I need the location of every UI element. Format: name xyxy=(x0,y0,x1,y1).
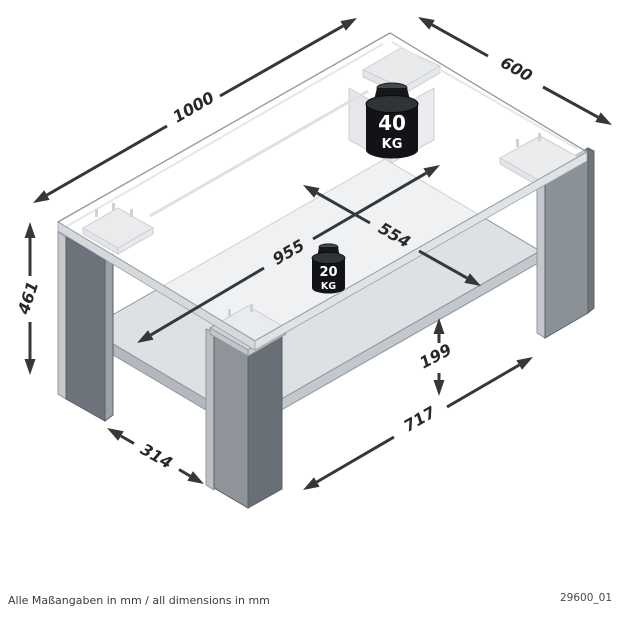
dimension-label-600: 600 xyxy=(497,53,535,86)
arrowhead-icon xyxy=(25,222,36,238)
coffee-table-dimension-diagram: 40 KG 20 KG 1000 600 461 xyxy=(0,0,620,620)
weight-20kg-unit: KG xyxy=(321,281,336,292)
weight-20kg-value: 20 xyxy=(319,265,337,280)
arrowhead-icon xyxy=(434,380,445,396)
weight-body-top xyxy=(366,96,418,113)
dimension-label-314: 314 xyxy=(137,440,175,473)
arrowhead-icon xyxy=(303,477,320,490)
front-leg xyxy=(206,329,282,508)
arrowhead-icon xyxy=(107,428,124,441)
dimension-leg-depth: 314 xyxy=(107,428,204,484)
weight-40kg-unit: KG xyxy=(382,137,403,152)
left-leg xyxy=(58,232,113,421)
dimension-label-199: 199 xyxy=(416,340,454,372)
arrowhead-icon xyxy=(418,17,435,30)
arrowhead-icon xyxy=(595,112,612,125)
arrowhead-icon xyxy=(187,471,204,484)
dimension-label-717: 717 xyxy=(400,402,439,436)
dimension-diagram-canvas: 40 KG 20 KG 1000 600 461 xyxy=(0,0,620,620)
weight-40kg-value: 40 xyxy=(378,111,406,135)
glass-surface xyxy=(58,33,587,341)
weight-body-top xyxy=(312,253,345,264)
arrowhead-icon xyxy=(33,190,50,203)
dimension-table-height: 461 xyxy=(14,222,43,375)
dimension-label-461: 461 xyxy=(14,279,43,318)
dimension-label-1000: 1000 xyxy=(169,88,217,127)
arrowhead-icon xyxy=(25,359,36,375)
arrowhead-icon xyxy=(516,357,533,370)
units-footnote: Alle Maßangaben in mm / all dimensions i… xyxy=(8,594,270,607)
drawing-number: 29600_01 xyxy=(560,592,612,604)
arrowhead-icon xyxy=(340,18,357,31)
